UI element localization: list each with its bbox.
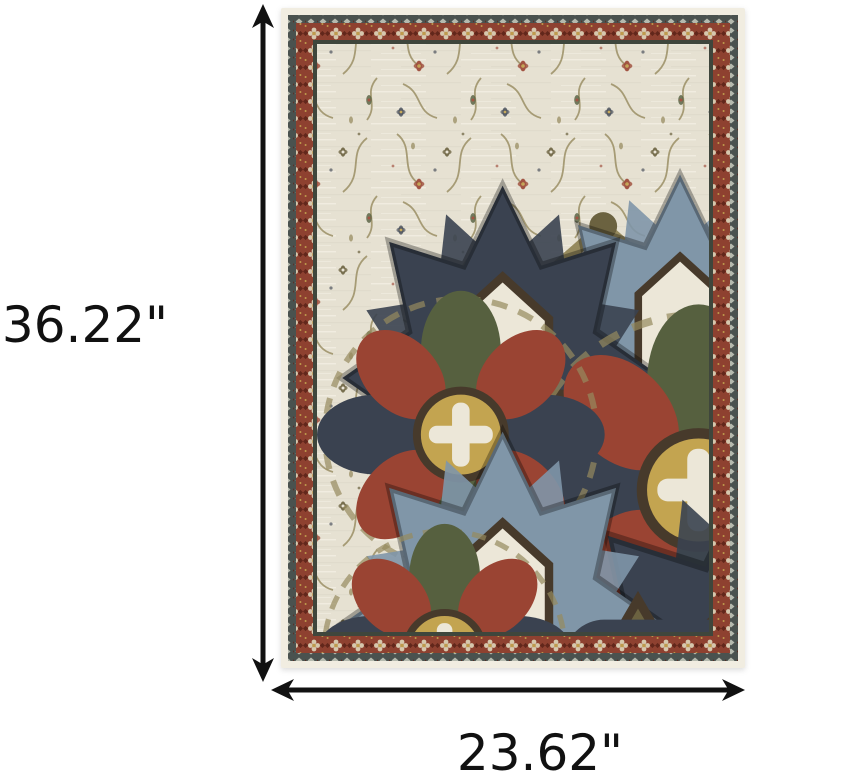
rug-image (281, 8, 745, 668)
dimension-diagram: 36.22" 23.62" (0, 0, 850, 783)
width-label: 23.62" (430, 728, 650, 778)
height-dimension-arrow (249, 3, 277, 683)
height-label: 36.22" (0, 300, 170, 350)
width-dimension-arrow (270, 676, 746, 704)
